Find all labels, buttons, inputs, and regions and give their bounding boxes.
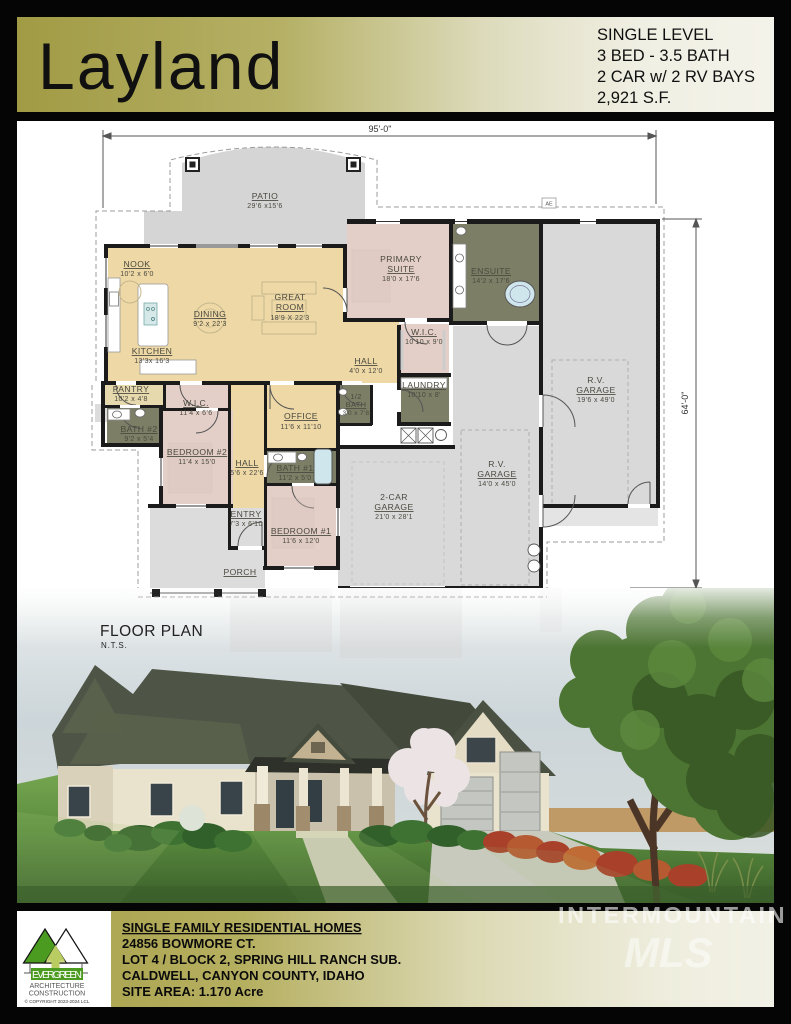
svg-text:ARCHITECTURE: ARCHITECTURE bbox=[30, 983, 85, 990]
svg-text:© COPYRIGHT 2023-2024 LCL: © COPYRIGHT 2023-2024 LCL bbox=[25, 998, 90, 1004]
svg-text:5'6 x 22'6: 5'6 x 22'6 bbox=[230, 470, 264, 477]
svg-text:ROOM: ROOM bbox=[276, 302, 304, 312]
svg-text:2 CAR w/ 2 RV BAYS: 2 CAR w/ 2 RV BAYS bbox=[597, 68, 755, 86]
svg-text:3 BED - 3.5 BATH: 3 BED - 3.5 BATH bbox=[597, 47, 730, 65]
svg-text:11'4 x 15'0: 11'4 x 15'0 bbox=[178, 459, 215, 466]
svg-text:64'-0": 64'-0" bbox=[680, 392, 690, 415]
svg-text:ENTRY: ENTRY bbox=[231, 509, 262, 519]
svg-text:Layland: Layland bbox=[38, 29, 285, 103]
svg-text:DINING: DINING bbox=[194, 309, 226, 319]
svg-text:10'10 x 9'0: 10'10 x 9'0 bbox=[405, 339, 443, 346]
svg-text:LOT 4 / BLOCK 2, SPRING HILL R: LOT 4 / BLOCK 2, SPRING HILL RANCH SUB. bbox=[122, 952, 401, 967]
svg-text:2-CAR: 2-CAR bbox=[380, 492, 408, 502]
svg-text:N.T.S.: N.T.S. bbox=[101, 641, 128, 650]
svg-text:95'-0": 95'-0" bbox=[369, 124, 392, 134]
svg-text:19'6 x 49'0: 19'6 x 49'0 bbox=[577, 397, 615, 404]
svg-text:11'2 x 5'0: 11'2 x 5'0 bbox=[278, 475, 311, 482]
svg-text:CALDWELL, CANYON COUNTY, IDAHO: CALDWELL, CANYON COUNTY, IDAHO bbox=[122, 968, 365, 983]
svg-text:SITE AREA: 1.170 Acre: SITE AREA: 1.170 Acre bbox=[122, 984, 263, 999]
svg-text:MLS: MLS bbox=[624, 929, 713, 976]
svg-text:LAUNDRY: LAUNDRY bbox=[402, 380, 446, 390]
svg-text:BEDROOM #1: BEDROOM #1 bbox=[271, 526, 331, 536]
svg-text:11'6 x 12'0: 11'6 x 12'0 bbox=[282, 538, 319, 545]
svg-text:PRIMARY: PRIMARY bbox=[380, 254, 422, 264]
svg-text:INTERMOUNTAIN: INTERMOUNTAIN bbox=[558, 902, 787, 928]
svg-text:24856 BOWMORE CT.: 24856 BOWMORE CT. bbox=[122, 936, 256, 951]
svg-text:HALL: HALL bbox=[354, 356, 377, 366]
svg-text:GARAGE: GARAGE bbox=[576, 385, 615, 395]
svg-text:BEDROOM #2: BEDROOM #2 bbox=[167, 447, 227, 457]
svg-text:PORCH: PORCH bbox=[223, 567, 256, 577]
svg-text:SINGLE LEVEL: SINGLE LEVEL bbox=[597, 26, 713, 44]
svg-text:14'2 x 17'6: 14'2 x 17'6 bbox=[472, 278, 510, 285]
svg-text:BATH #1: BATH #1 bbox=[276, 463, 313, 473]
svg-text:GARAGE: GARAGE bbox=[374, 502, 413, 512]
svg-text:BATH #2: BATH #2 bbox=[120, 424, 157, 434]
svg-text:NOOK: NOOK bbox=[124, 259, 151, 269]
svg-text:KITCHEN: KITCHEN bbox=[132, 346, 173, 356]
svg-text:ENSUITE: ENSUITE bbox=[471, 266, 511, 276]
svg-text:PATIO: PATIO bbox=[252, 191, 279, 201]
svg-text:EVERGREEN: EVERGREEN bbox=[32, 969, 82, 981]
svg-text:HALL: HALL bbox=[235, 458, 258, 468]
svg-text:R.V.: R.V. bbox=[587, 375, 605, 385]
svg-text:BATH: BATH bbox=[346, 400, 367, 409]
svg-text:18'9 X 22'3: 18'9 X 22'3 bbox=[271, 315, 310, 322]
svg-text:29'6 x15'6: 29'6 x15'6 bbox=[247, 203, 282, 210]
svg-text:9'2 x 22'3: 9'2 x 22'3 bbox=[193, 321, 227, 328]
svg-text:4'0 x 12'0: 4'0 x 12'0 bbox=[349, 368, 383, 375]
svg-text:2,921 S.F.: 2,921 S.F. bbox=[597, 89, 671, 107]
svg-text:11'4 x 6'6: 11'4 x 6'6 bbox=[179, 410, 212, 417]
svg-text:9'2 x 5'4: 9'2 x 5'4 bbox=[124, 436, 153, 443]
svg-text:PANTRY: PANTRY bbox=[113, 384, 149, 394]
svg-text:10'10 x 8': 10'10 x 8' bbox=[407, 392, 441, 399]
svg-text:FLOOR PLAN: FLOOR PLAN bbox=[100, 623, 203, 640]
svg-text:SUITE: SUITE bbox=[387, 264, 414, 274]
svg-text:SINGLE FAMILY RESIDENTIAL HOME: SINGLE FAMILY RESIDENTIAL HOMES bbox=[122, 920, 362, 935]
svg-text:14'0 x 45'0: 14'0 x 45'0 bbox=[478, 481, 516, 488]
svg-text:18'0 x 17'6: 18'0 x 17'6 bbox=[382, 276, 420, 283]
svg-text:R.V.: R.V. bbox=[488, 459, 506, 469]
svg-text:OFFICE: OFFICE bbox=[284, 411, 318, 421]
svg-text:11'6 x 11'10: 11'6 x 11'10 bbox=[280, 424, 321, 431]
svg-text:W.I.C.: W.I.C. bbox=[183, 398, 209, 408]
svg-text:10'2 x 4'8: 10'2 x 4'8 bbox=[114, 396, 148, 403]
svg-text:GARAGE: GARAGE bbox=[477, 469, 516, 479]
svg-text:AE: AE bbox=[545, 202, 553, 208]
svg-text:7'3 x 6'10: 7'3 x 6'10 bbox=[229, 521, 263, 528]
svg-text:10'2 x 6'0: 10'2 x 6'0 bbox=[120, 271, 154, 278]
svg-text:CONSTRUCTION: CONSTRUCTION bbox=[29, 991, 85, 998]
svg-text:21'0 x 28'1: 21'0 x 28'1 bbox=[375, 514, 413, 521]
svg-text:3'0 x 7'8: 3'0 x 7'8 bbox=[342, 410, 369, 417]
svg-text:GREAT: GREAT bbox=[275, 292, 306, 302]
svg-text:W.I.C.: W.I.C. bbox=[411, 327, 437, 337]
svg-text:13'3x 16'3: 13'3x 16'3 bbox=[134, 358, 169, 365]
